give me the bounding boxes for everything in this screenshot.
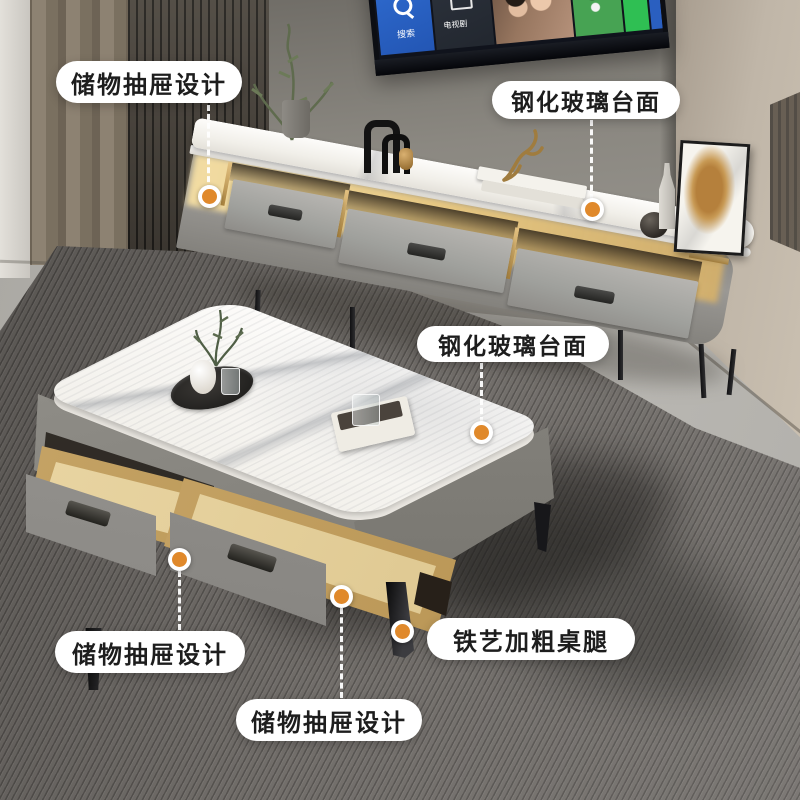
decor-glass-cup: [352, 394, 380, 426]
product-photo-scene: 综艺 搜索 电视剧: [0, 0, 800, 800]
sheer-curtain: [0, 0, 30, 278]
decor-plant-pot: [282, 100, 310, 138]
slat-panel-right: [770, 92, 800, 252]
callout-anchor-dot: [581, 198, 604, 221]
callout-dashed-line: [590, 120, 593, 200]
curtain: [24, 0, 128, 265]
callout-anchor-dot: [198, 185, 221, 208]
callout-anchor-dot: [391, 620, 414, 643]
callout-pill-iron-legs: 铁艺加粗桌腿: [427, 618, 635, 660]
callout-pill-drawer-design-center: 储物抽屉设计: [236, 699, 422, 741]
tv-stand-leg: [618, 330, 623, 380]
callout-anchor-dot: [330, 585, 353, 608]
callout-pill-glass-top-tv-stand: 钢化玻璃台面: [492, 81, 680, 119]
tv-tile-cartoon: [569, 0, 624, 37]
callout-dashed-line: [480, 363, 483, 423]
tv-tile-bright-green: [619, 0, 650, 32]
callout-pill-drawer-design-left: 储物抽屉设计: [55, 631, 245, 673]
callout-pill-glass-top-coffee-table: 钢化玻璃台面: [417, 326, 609, 362]
tv-tile-photo-couple: [490, 0, 575, 44]
decor-gold-vase: [399, 148, 413, 170]
series-tile-label: 电视剧: [443, 18, 468, 31]
decor-gold-figurine: [498, 128, 544, 183]
tv-tile-search: 搜索: [374, 0, 435, 55]
decor-art-frame: [674, 140, 751, 256]
decor-green-branch: [186, 298, 252, 370]
callout-anchor-dot: [470, 421, 493, 444]
callout-dashed-line: [178, 571, 181, 630]
search-icon: [393, 0, 414, 16]
callout-dashed-line: [340, 608, 343, 698]
tv-set-icon: [449, 0, 473, 11]
search-tile-label: 搜索: [379, 24, 434, 42]
decor-glass-cup: [221, 368, 240, 395]
tv-stand-leg: [350, 307, 355, 353]
tv-tile-series: 电视剧: [430, 0, 495, 50]
callout-dashed-line: [207, 105, 210, 191]
callout-pill-drawer-design-top: 储物抽屉设计: [56, 61, 242, 103]
callout-anchor-dot: [168, 548, 191, 571]
